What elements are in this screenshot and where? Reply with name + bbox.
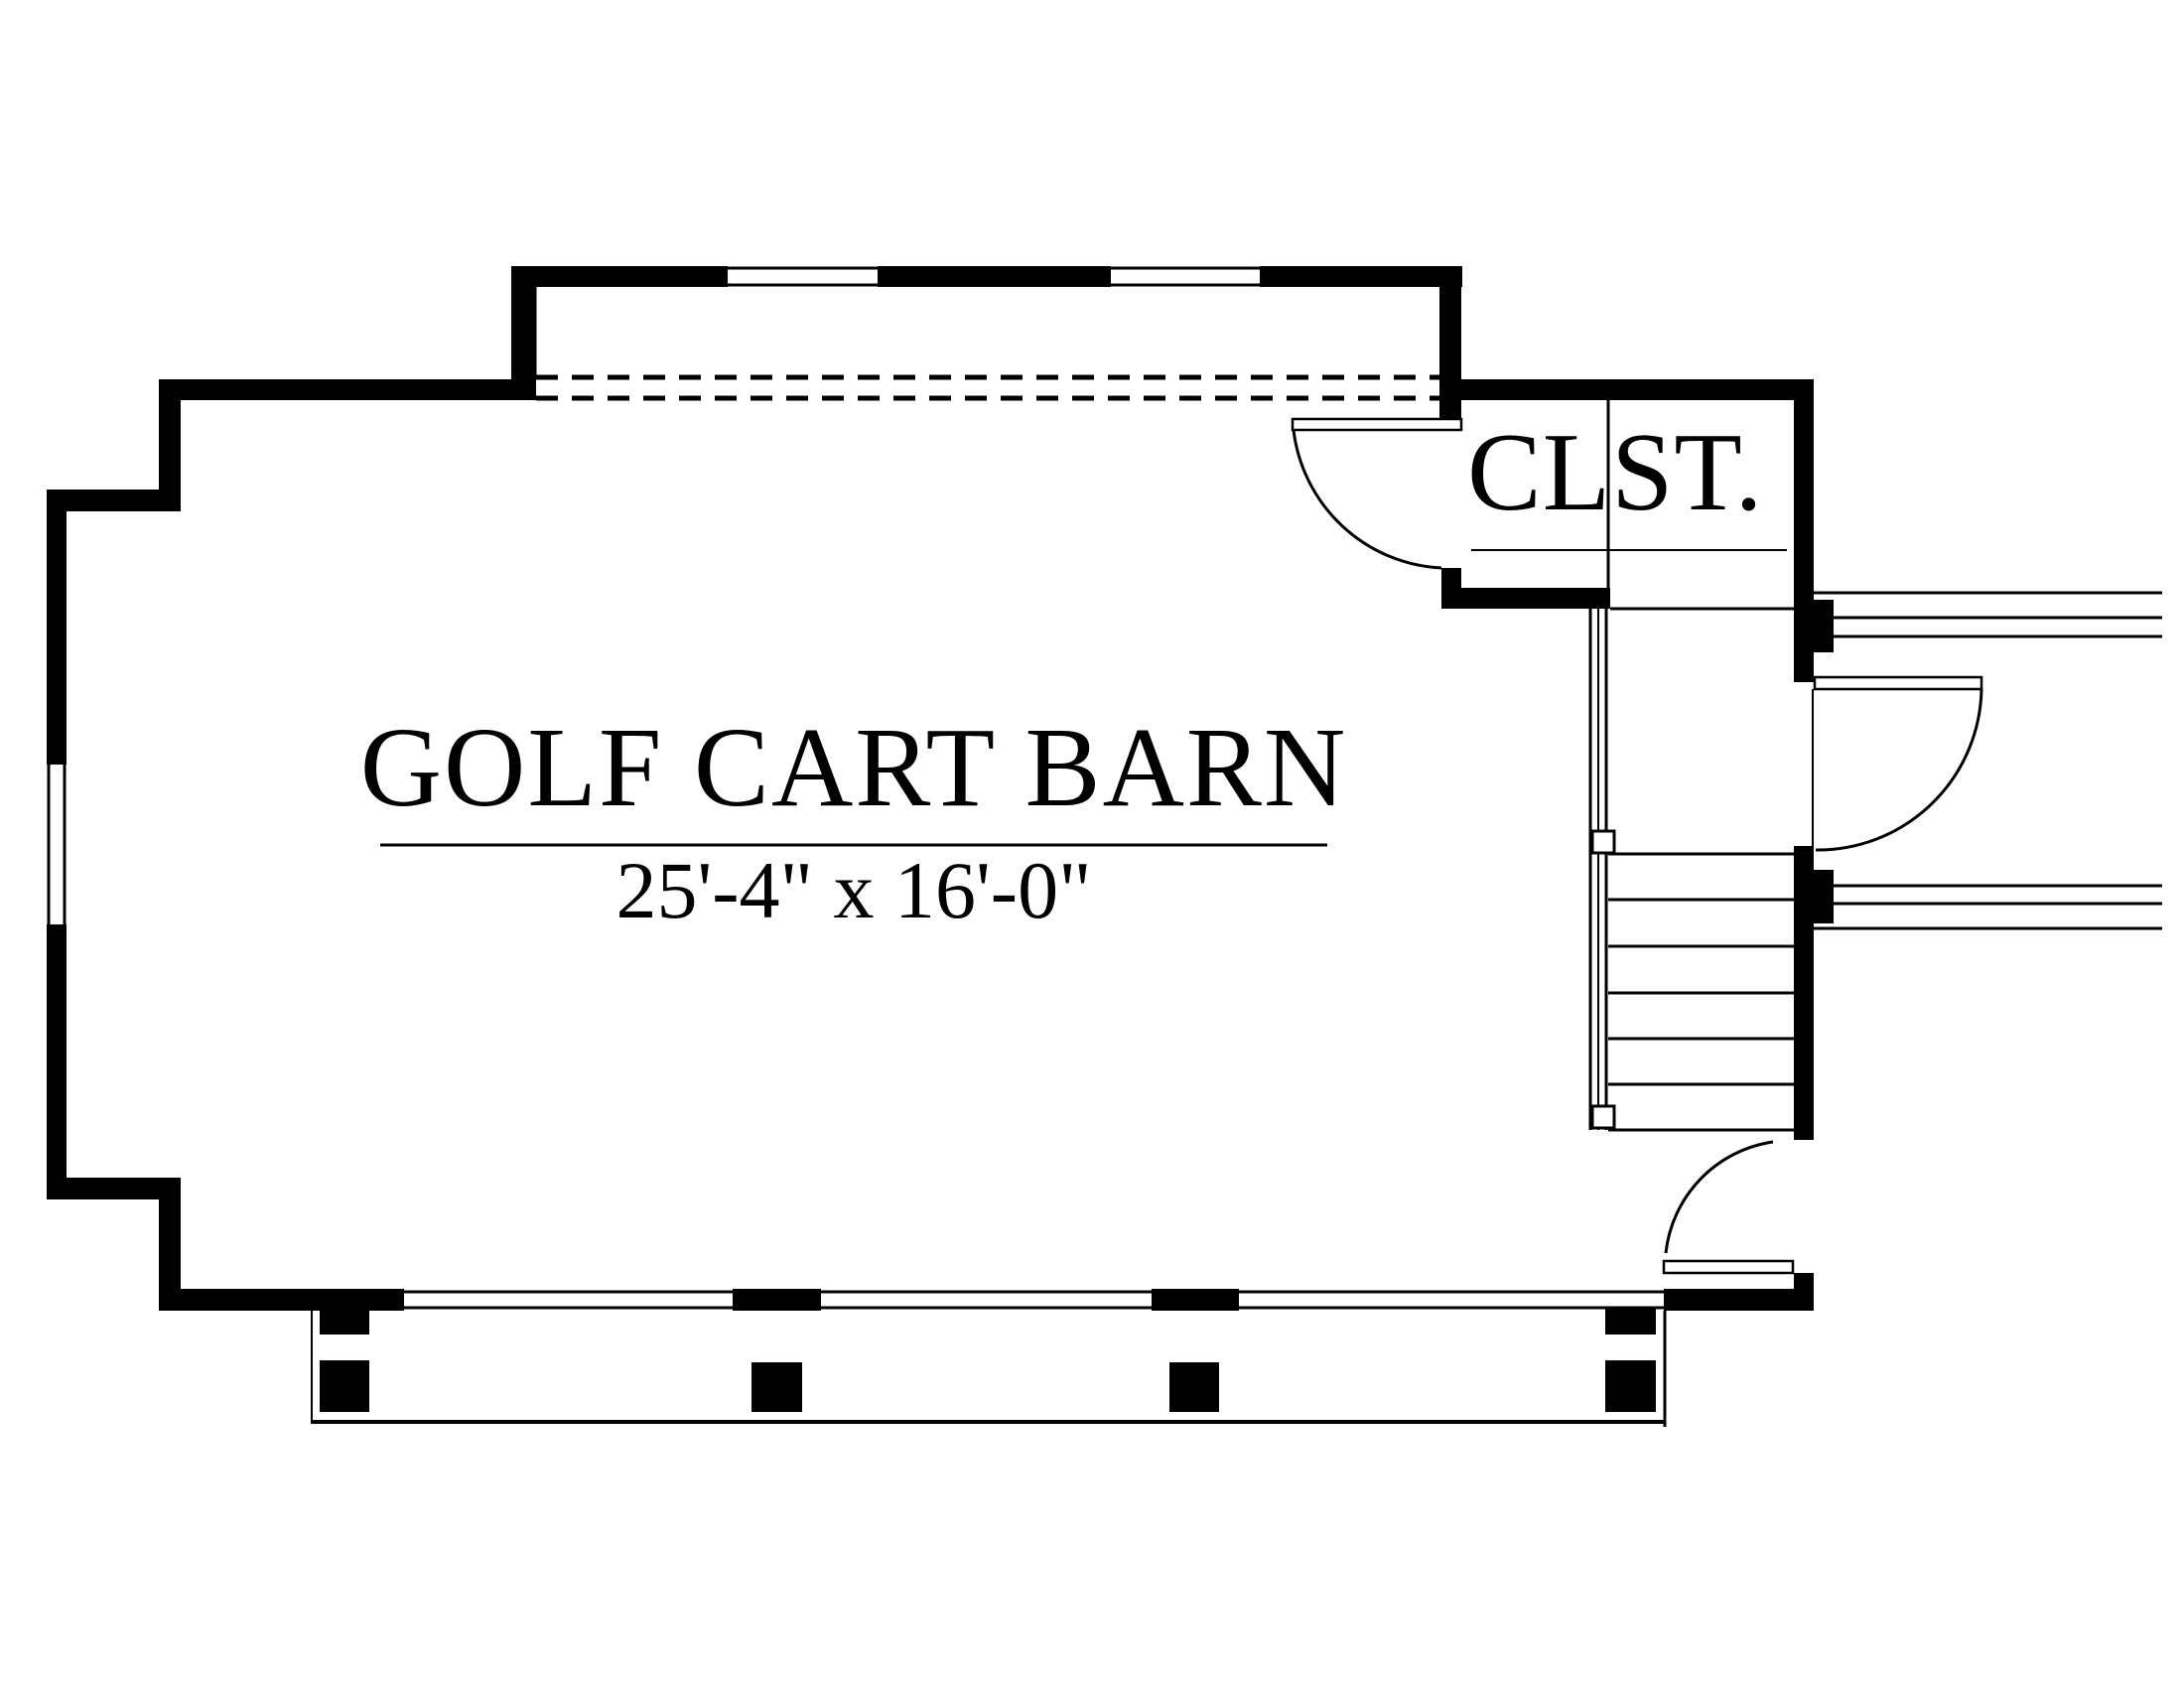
closet-door-leaf	[1293, 419, 1461, 430]
right-exterior-door-leaf	[1815, 677, 1981, 689]
floor-plan: GOLF CART BARN 25'-4" x 16'-0" CLST.	[0, 0, 2184, 1688]
wall-bottom-segment-1	[159, 1289, 404, 1311]
porch-pier-right	[1605, 1309, 1656, 1335]
bottom-right-door-leaf	[1664, 1261, 1793, 1273]
doors	[1293, 419, 1981, 1273]
wall-closet-south-end-cap	[1441, 568, 1461, 609]
wall-right-middle	[1794, 846, 1814, 1140]
closet-label: CLST.	[1467, 417, 1764, 528]
stairs	[1590, 609, 1794, 1130]
wall-top-left-segment	[159, 379, 536, 400]
room-title: GOLF CART BARN	[298, 711, 1410, 824]
porch-column-3	[1169, 1362, 1219, 1412]
right-exterior-door-swing-arc	[1816, 689, 1981, 850]
wall-bottom-segment-4	[1664, 1289, 1814, 1311]
wall-right-upper	[1794, 379, 1814, 682]
porch	[311, 1292, 1666, 1427]
bottom-right-door-swing-arc	[1666, 1142, 1773, 1253]
wall-left-jog-upper-horizontal	[47, 490, 181, 511]
stair-newel-post-top	[1592, 831, 1614, 853]
stair-newel-post-bottom	[1592, 1106, 1614, 1128]
porch-column-1	[320, 1360, 369, 1412]
wall-bottom-segment-3	[1152, 1289, 1239, 1311]
wall-right-lower-corner	[1794, 1273, 1814, 1311]
floor-plan-drawing	[0, 0, 2184, 1688]
room-dimensions: 25'-4" x 16'-0"	[298, 850, 1410, 931]
deck-pier-lower	[1814, 870, 1834, 923]
wall-bumpout-top	[511, 266, 1462, 287]
wall-top-right-segment	[1439, 379, 1814, 400]
deck-pier-upper	[1814, 600, 1834, 652]
garage-opening	[535, 286, 1441, 398]
porch-column-2	[751, 1362, 802, 1412]
wall-closet-south	[1441, 588, 1610, 609]
porch-pier-left	[320, 1309, 369, 1335]
exterior-deck-rails	[1813, 593, 2162, 928]
wall-bottom-segment-2	[733, 1289, 821, 1311]
wall-left-upper	[47, 490, 67, 765]
porch-column-4	[1605, 1360, 1656, 1412]
wall-left-lower	[47, 924, 67, 1199]
closet-door-swing-arc	[1294, 430, 1441, 568]
wall-bumpout-left	[511, 266, 534, 399]
